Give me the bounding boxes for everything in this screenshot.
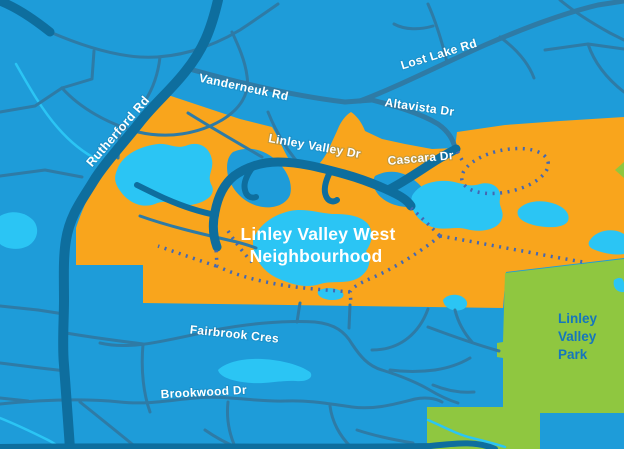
park-label-line3: Park <box>558 347 588 362</box>
neighbourhood-title-line1: Linley Valley West <box>240 224 395 244</box>
street <box>349 305 350 328</box>
park-label-line2: Valley <box>558 329 597 344</box>
neighbourhood-title-line2: Neighbourhood <box>250 246 383 266</box>
map-svg: Rutherford Rd Vanderneuk Rd Lost Lake Rd… <box>0 0 624 449</box>
map-container: Rutherford Rd Vanderneuk Rd Lost Lake Rd… <box>0 0 624 449</box>
edge-road <box>0 443 495 449</box>
lake <box>411 181 502 231</box>
park-label-line1: Linley <box>558 311 598 326</box>
